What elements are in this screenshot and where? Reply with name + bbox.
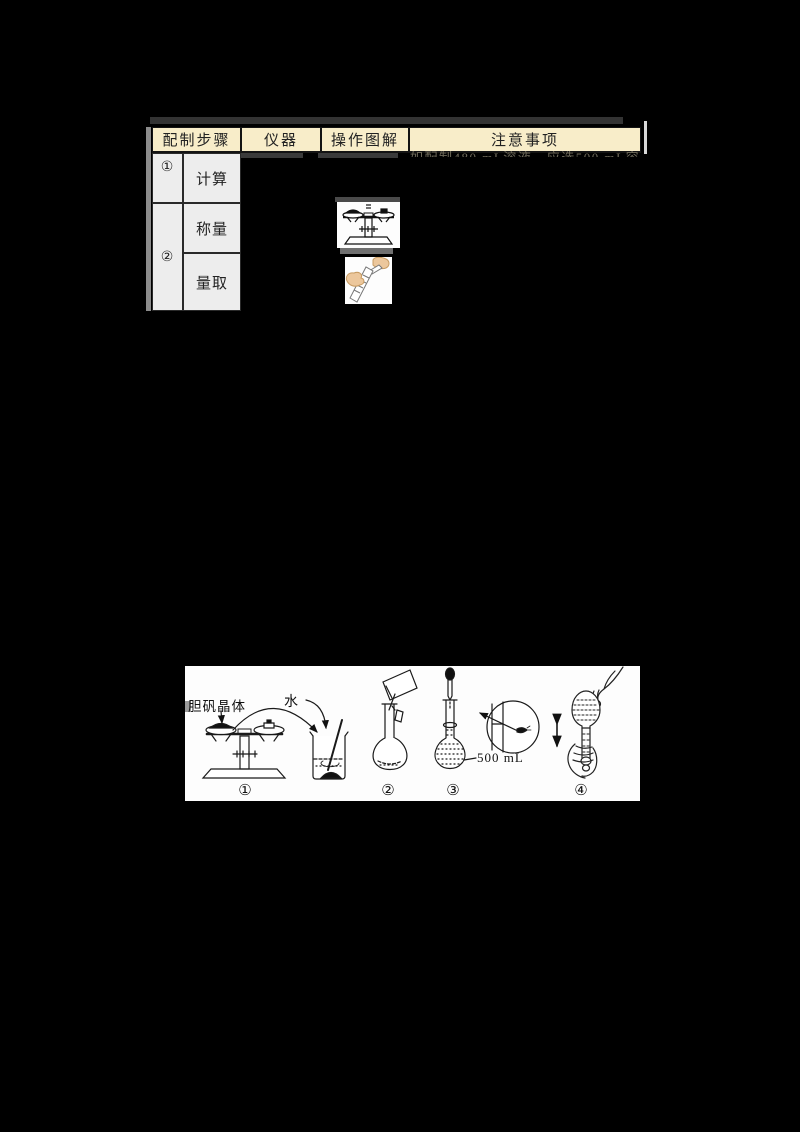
occluded-cell-sliver <box>340 248 393 254</box>
shake-flask-figure <box>568 667 623 778</box>
occluded-note-text: 如配制480 mL溶液，应选500 mL容量瓶 <box>410 151 640 157</box>
step-number-2: ② <box>152 203 183 311</box>
crystal-label: 胆矾晶体 <box>188 695 246 715</box>
figure-caption-2: ② <box>379 781 397 799</box>
figure-caption-1: ① <box>236 781 254 799</box>
step-label-weigh: 称量 <box>183 203 241 253</box>
volume-label: 500 mL <box>477 750 524 766</box>
balance-scale-figure <box>203 720 285 778</box>
col-header-steps: 配制步骤 <box>152 127 241 153</box>
volume-leader-line <box>464 758 476 760</box>
step-number-1: ① <box>152 153 183 203</box>
figure-caption-3: ③ <box>444 781 462 799</box>
beaker-stir-figure <box>310 720 348 779</box>
volumetric-flask-dropper-figure <box>435 668 476 769</box>
col-header-instrument: 仪器 <box>241 127 321 153</box>
step-label-measure: 量取 <box>183 253 241 311</box>
measuring-cylinder-hands-icon <box>345 257 392 304</box>
col-header-notes: 注意事项 <box>409 127 641 153</box>
occluded-cell-sliver <box>241 153 303 158</box>
page-edge-sliver-right <box>644 121 647 154</box>
figure-caption-4: ④ <box>572 781 590 799</box>
occluded-cell-sliver <box>318 153 398 158</box>
figure-strip: 胆矾晶体 水 500 mL ① ② ③ ④ <box>185 666 640 801</box>
water-label: 水 <box>284 691 299 711</box>
balance-scale-icon <box>337 202 400 248</box>
document-page: 配制步骤 仪器 操作图解 注意事项 ① 计算 ② 称量 量取 如配制480 mL… <box>0 0 800 1132</box>
col-header-diagram: 操作图解 <box>321 127 409 153</box>
occluded-note: 如配制480 mL溶液，应选500 mL容量瓶 <box>410 151 640 157</box>
page-edge-sliver-left <box>146 127 151 311</box>
occluded-strip-top <box>150 117 623 124</box>
eye-level-magnifier-figure <box>480 701 539 753</box>
step-label-calculate: 计算 <box>183 153 241 203</box>
volumetric-flask-pour-figure <box>373 670 417 770</box>
